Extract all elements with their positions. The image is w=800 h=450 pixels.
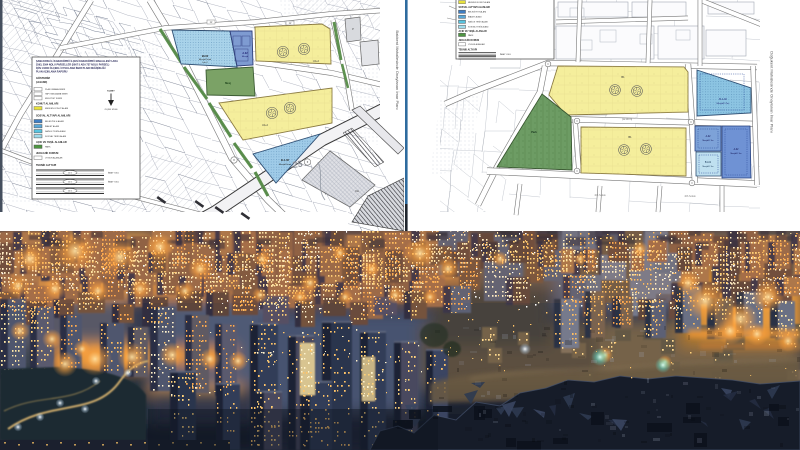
svg-text:YAPI YAKLAŞMA SINIRI: YAPI YAKLAŞMA SINIRI bbox=[45, 93, 68, 96]
svg-text:Doğukent Mahallesinde Onaylana: Doğukent Mahallesinde Onaylanan İmar Pla… bbox=[770, 51, 775, 133]
svg-text:A-02: A-02 bbox=[734, 148, 740, 151]
svg-text:AÇIK VE YEŞİL ALANLAR: AÇIK VE YEŞİL ALANLAR bbox=[459, 30, 488, 33]
svg-text:B-1-02: B-1-02 bbox=[281, 158, 289, 162]
svg-text:MESKEN KONUT ALANI: MESKEN KONUT ALANI bbox=[45, 107, 68, 110]
svg-text:P: P bbox=[352, 27, 354, 31]
svg-text:UA-2: UA-2 bbox=[313, 59, 319, 63]
svg-text:12 m: 12 m bbox=[68, 191, 73, 193]
svg-text:A-02: A-02 bbox=[242, 52, 248, 55]
svg-text:UA-2: UA-2 bbox=[262, 123, 268, 127]
svg-text:B1: B1 bbox=[628, 135, 632, 139]
svg-text:12 m: 12 m bbox=[68, 173, 73, 175]
svg-text:İBADET ALANI: İBADET ALANI bbox=[45, 125, 59, 128]
svg-text:KONUT ALANLARI: KONUT ALANLARI bbox=[36, 103, 59, 106]
svg-text:MESKEN KONUT ALANI: MESKEN KONUT ALANI bbox=[468, 1, 491, 4]
svg-text:Mesjid/Ortak: Mesjid/Ortak bbox=[279, 163, 292, 166]
svg-text:SOSYAL ALTYAPI ALANLARI: SOSYAL ALTYAPI ALANLARI bbox=[459, 6, 491, 9]
svg-text:Mesjid/O.Tes: Mesjid/O.Tes bbox=[717, 103, 731, 105]
svg-text:SOSYAL TESİS ALANI: SOSYAL TESİS ALANI bbox=[468, 26, 489, 29]
svg-text:JEOLOJİK DURUM: JEOLOJİK DURUM bbox=[36, 152, 58, 155]
svg-text:25: 25 bbox=[292, 159, 303, 170]
svg-text:BELEDİYE H.ALANI: BELEDİYE H.ALANI bbox=[468, 11, 487, 14]
svg-text:TEKNİK ALTYAPI: TEKNİK ALTYAPI bbox=[36, 164, 56, 167]
svg-text:Oto: Oto bbox=[355, 189, 360, 193]
svg-text:AÇIK VE YEŞİL ALANLAR: AÇIK VE YEŞİL ALANLAR bbox=[36, 141, 67, 144]
svg-text:İMAR YOLU: İMAR YOLU bbox=[108, 181, 120, 184]
svg-text:12 m: 12 m bbox=[68, 182, 73, 184]
svg-text:JEOLOJİK DURUM: JEOLOJİK DURUM bbox=[459, 39, 480, 42]
svg-text:Batıkent Mahallesinde Onaylana: Batıkent Mahallesinde Onaylanan İmar Pla… bbox=[395, 30, 400, 109]
svg-text:Mesjid/O.Tes: Mesjid/O.Tes bbox=[703, 140, 714, 142]
svg-text:Mesjid/O.Tes: Mesjid/O.Tes bbox=[703, 166, 714, 168]
svg-text:Mesjid/O.Tes: Mesjid/O.Tes bbox=[731, 153, 742, 155]
svg-text:B1-02: B1-02 bbox=[705, 162, 712, 164]
svg-text:B-1-02: B-1-02 bbox=[719, 98, 727, 101]
svg-text:Park: Park bbox=[531, 130, 537, 134]
svg-text:İMAR YOLU: İMAR YOLU bbox=[108, 172, 120, 175]
svg-text:SOSYAL ALTYAPI ALANLARI: SOSYAL ALTYAPI ALANLARI bbox=[36, 115, 71, 118]
svg-text:Lok-2: Lok-2 bbox=[202, 62, 208, 64]
svg-text:SAĞLIK TESİS ALANI: SAĞLIK TESİS ALANI bbox=[468, 21, 488, 24]
svg-text:(LEJAND): (LEJAND) bbox=[36, 81, 47, 84]
svg-text:Bl-02: Bl-02 bbox=[202, 54, 209, 58]
svg-text:ÖLÇEK 1/1000: ÖLÇEK 1/1000 bbox=[105, 108, 118, 111]
svg-text:KUZEY: KUZEY bbox=[107, 91, 115, 93]
svg-text:PARK: PARK bbox=[468, 34, 474, 37]
svg-text:TEKNİK ALTYAPI: TEKNİK ALTYAPI bbox=[459, 49, 478, 52]
svg-text:SAĞLIK TESİS ALANI: SAĞLIK TESİS ALANI bbox=[45, 130, 66, 133]
svg-text:PLAN ONAMA SINIRI: PLAN ONAMA SINIRI bbox=[45, 88, 66, 91]
svg-text:406.Sokak: 406.Sokak bbox=[684, 195, 696, 198]
svg-text:PLAN AÇIKLAMA RAPORU: PLAN AÇIKLAMA RAPORU bbox=[36, 71, 68, 74]
svg-text:(12.00 m): (12.00 m) bbox=[622, 118, 632, 121]
svg-text:İBADET ALANI: İBADET ALANI bbox=[468, 16, 482, 19]
svg-text:404.Sokak: 404.Sokak bbox=[594, 194, 606, 197]
svg-text:SOSYAL TESİS ALANI: SOSYAL TESİS ALANI bbox=[45, 135, 67, 138]
svg-text:BELEDİYE H.ALANI: BELEDİYE H.ALANI bbox=[45, 120, 64, 123]
svg-text:Mesjid/Ortak: Mesjid/Ortak bbox=[199, 58, 212, 61]
svg-text:PARK: PARK bbox=[45, 146, 51, 149]
svg-text:UYGUN ALANLAR: UYGUN ALANLAR bbox=[468, 43, 485, 46]
svg-text:UYGUN ALANLAR: UYGUN ALANLAR bbox=[45, 157, 63, 160]
svg-text:Mesjid: Mesjid bbox=[242, 56, 249, 58]
svg-text:B1: B1 bbox=[621, 75, 625, 79]
svg-text:A-02: A-02 bbox=[706, 135, 712, 138]
svg-text:MÜLKİYET SINIRI: MÜLKİYET SINIRI bbox=[45, 97, 62, 100]
svg-text:Mesj: Mesj bbox=[225, 81, 231, 85]
svg-text:İMAR YOLU: İMAR YOLU bbox=[500, 53, 512, 56]
